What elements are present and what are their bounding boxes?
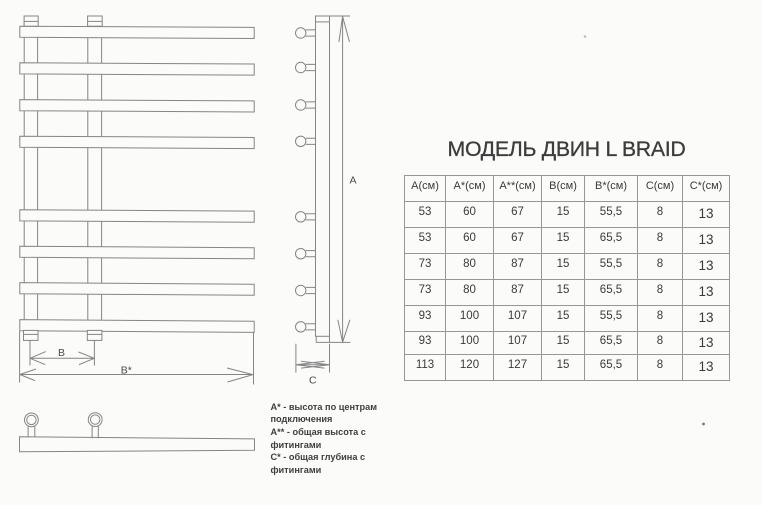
svg-text:C: C [309, 374, 317, 386]
svg-text:А: А [350, 174, 357, 186]
svg-text:B*: B* [121, 365, 132, 377]
svg-text:B: B [58, 347, 65, 359]
